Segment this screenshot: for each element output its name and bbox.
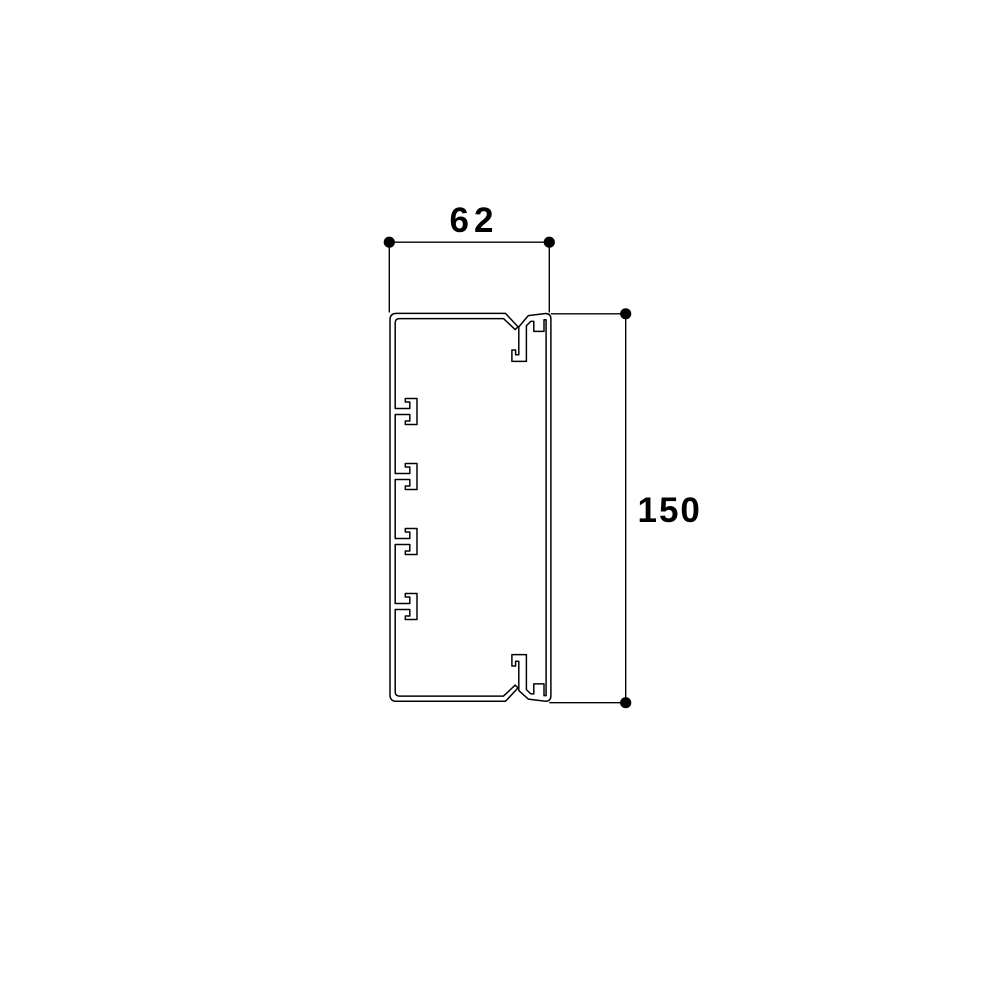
trunking-cover-outline — [512, 314, 551, 702]
width-dimension: 62 — [384, 201, 555, 312]
height-dimension-endpoint-dot-bottom — [620, 697, 631, 708]
width-dimension-endpoint-dot-right — [544, 237, 555, 248]
height-dimension-endpoint-dot-top — [620, 308, 631, 319]
technical-drawing-canvas: 62 150 — [0, 0, 1000, 1000]
trunking-base-outline — [390, 313, 518, 701]
trunking-profile — [390, 313, 551, 701]
height-dimension-label: 150 — [638, 491, 702, 530]
height-dimension: 150 — [550, 308, 702, 708]
drawing-page: 62 150 — [0, 0, 1000, 1000]
width-dimension-label: 62 — [450, 201, 499, 240]
width-dimension-endpoint-dot-left — [384, 237, 395, 248]
